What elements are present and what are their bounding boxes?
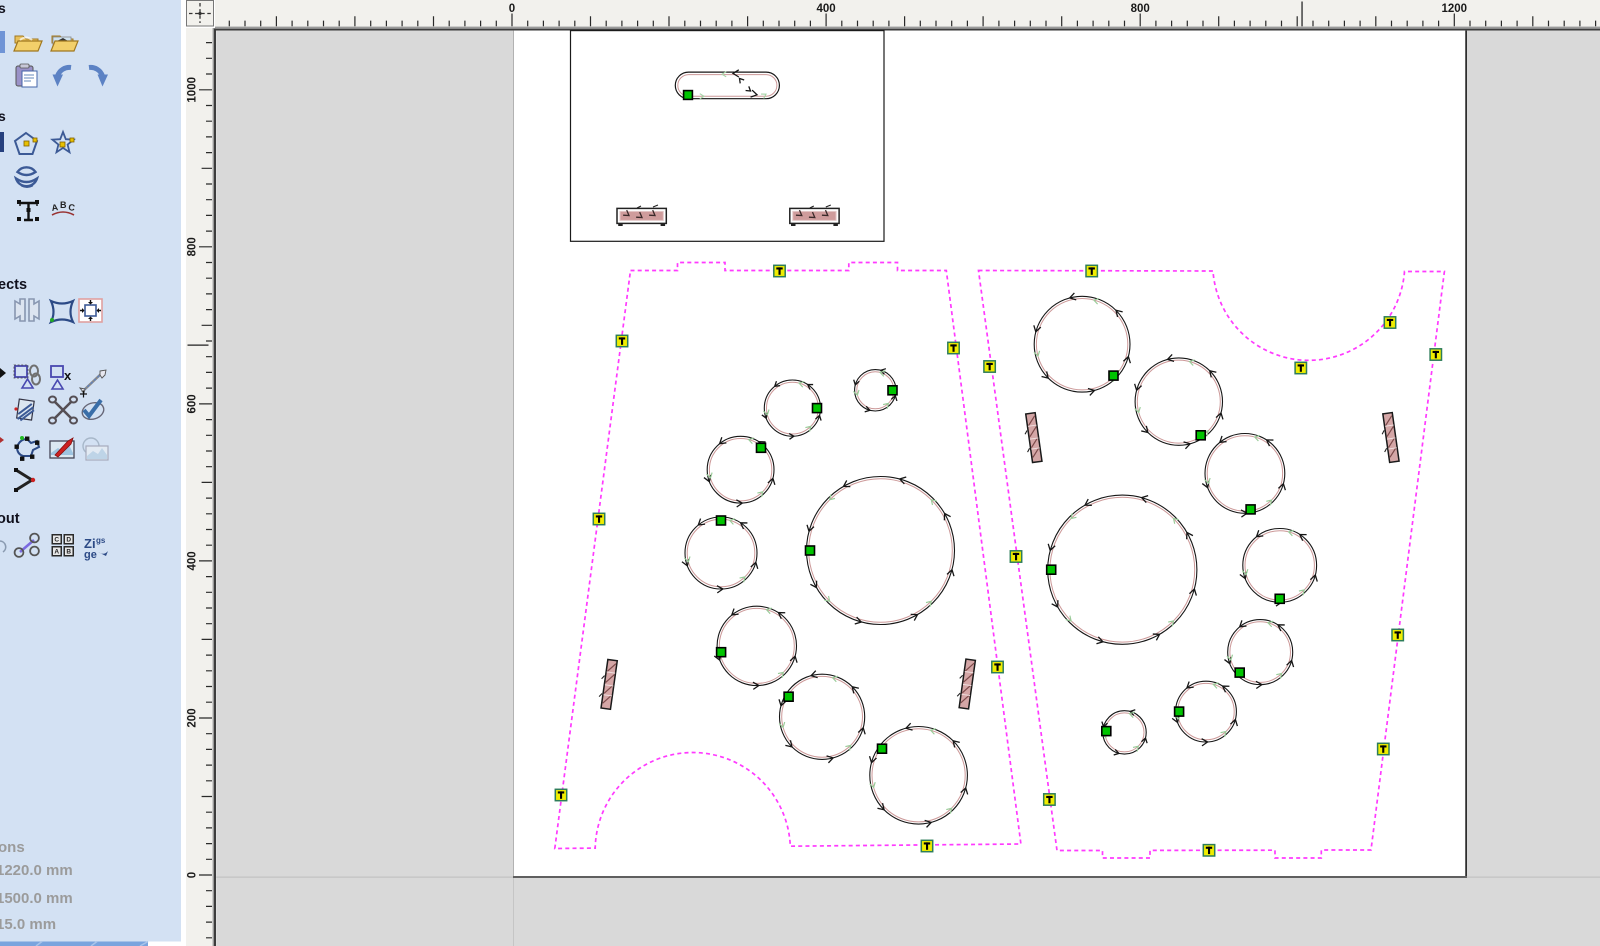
svg-text:D: D <box>66 537 71 544</box>
svg-text:200: 200 <box>187 708 199 727</box>
svg-text:ects: ects <box>0 277 27 293</box>
svg-text:800: 800 <box>1131 3 1150 15</box>
svg-text:s: s <box>0 108 6 124</box>
svg-text:A: A <box>54 549 59 556</box>
svg-text:out: out <box>0 511 20 527</box>
svg-text:B: B <box>60 200 67 210</box>
svg-text:C: C <box>54 537 59 544</box>
svg-text:ge: ge <box>84 549 97 561</box>
svg-text:800: 800 <box>187 237 199 256</box>
svg-text:0: 0 <box>187 872 199 878</box>
svg-text:B: B <box>66 549 71 556</box>
svg-text:ons: ons <box>0 839 25 856</box>
svg-text:gs: gs <box>96 536 106 545</box>
svg-text:0: 0 <box>509 3 515 15</box>
svg-text:1500.0 mm: 1500.0 mm <box>0 890 73 907</box>
svg-text:1000: 1000 <box>187 77 199 103</box>
svg-text:s: s <box>0 0 6 16</box>
svg-text:400: 400 <box>817 3 836 15</box>
svg-text:1220.0 mm: 1220.0 mm <box>0 862 73 879</box>
svg-text:x: x <box>64 368 72 383</box>
svg-text:600: 600 <box>187 394 199 413</box>
svg-text:1200: 1200 <box>1442 3 1468 15</box>
svg-text:400: 400 <box>187 551 199 570</box>
svg-text:15.0 mm: 15.0 mm <box>0 916 56 933</box>
